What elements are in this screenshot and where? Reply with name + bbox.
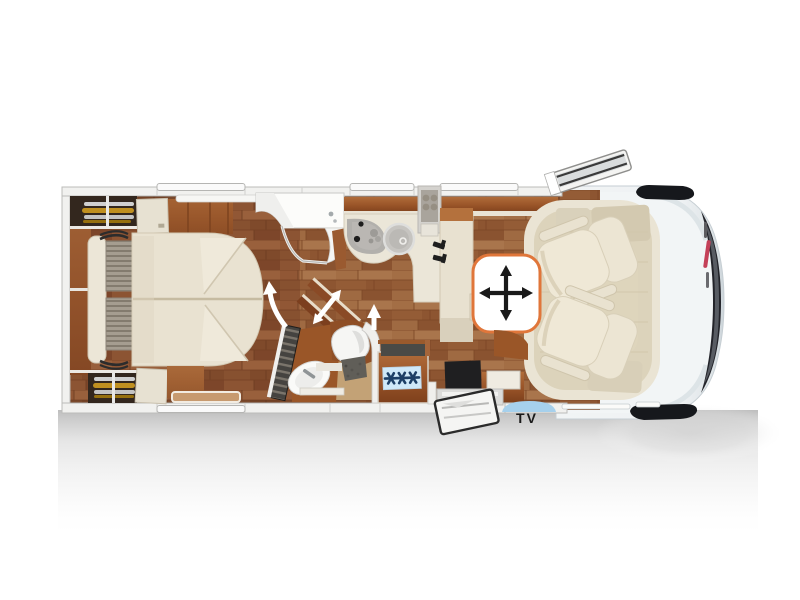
svg-text:TV: TV	[516, 410, 538, 426]
